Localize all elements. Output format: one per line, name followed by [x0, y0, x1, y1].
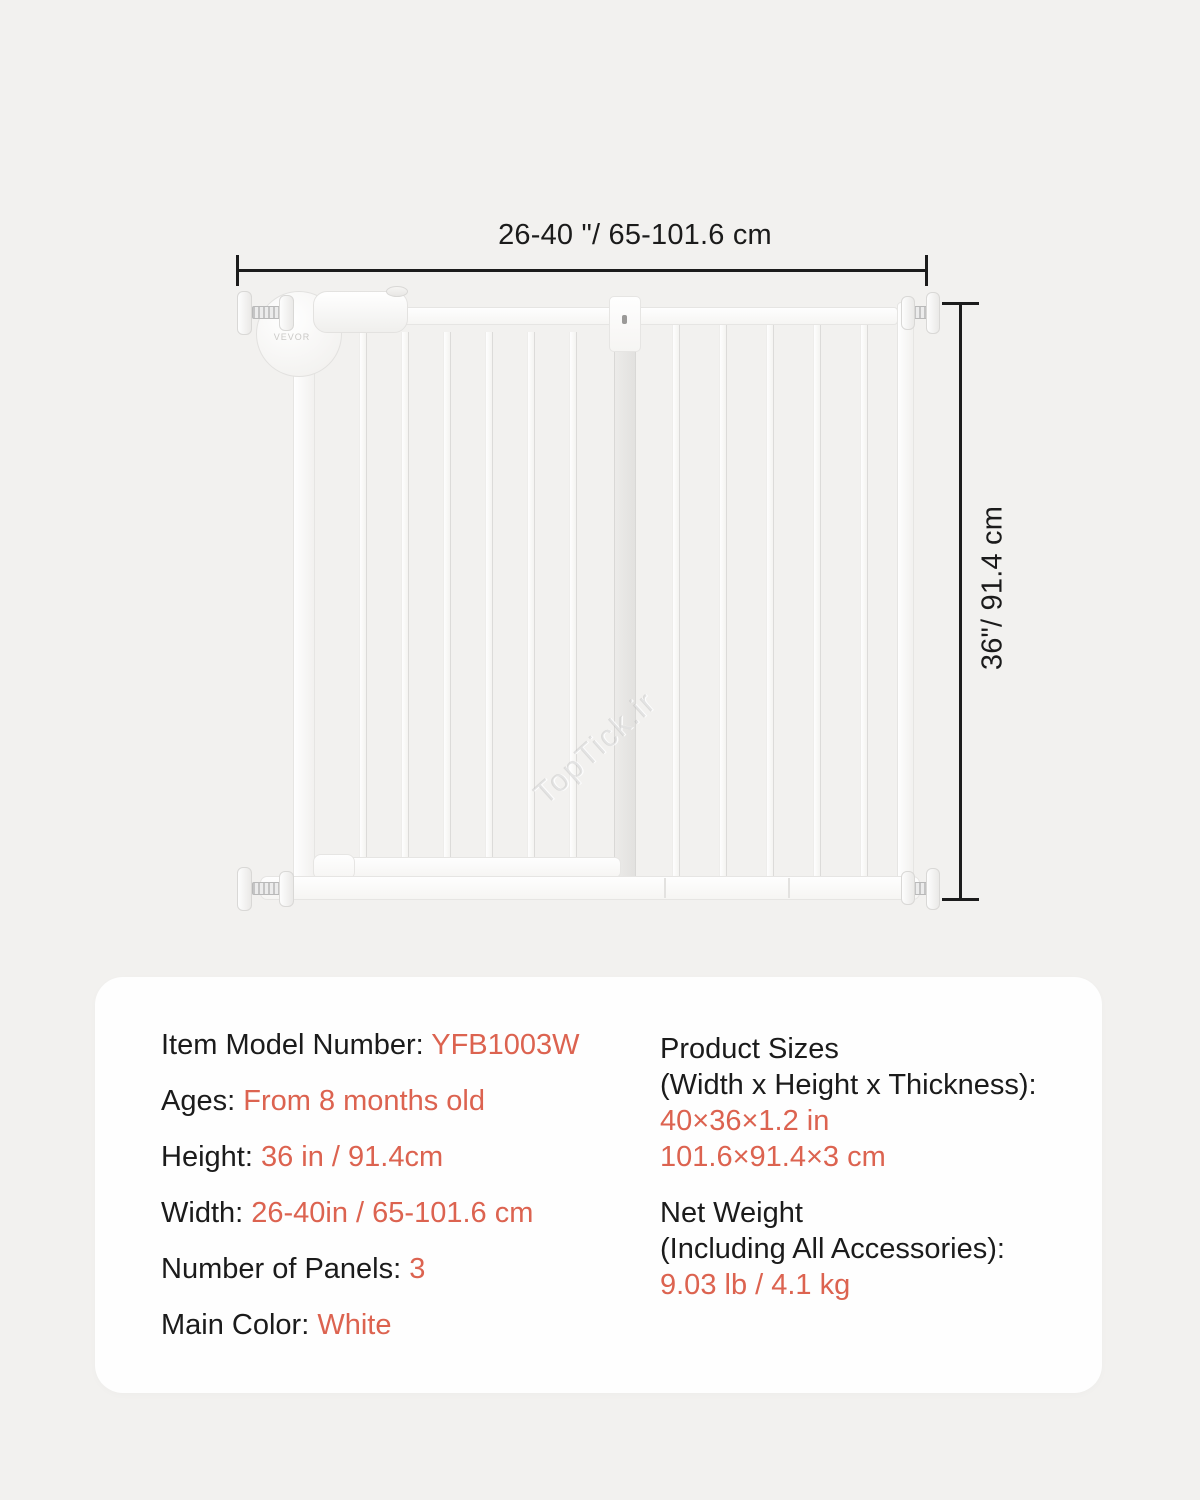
spec-row-ages: Ages: From 8 months old: [161, 1085, 485, 1118]
watermark: TopTick.ir: [527, 684, 664, 812]
pressure-knob-flange: [901, 871, 915, 905]
width-dimension-label: 26-40 "/ 65-101.6 cm: [290, 219, 980, 252]
spec-group-value: 101.6×91.4×3 cm: [660, 1139, 1037, 1175]
spec-group-title: Net Weight: [660, 1195, 1005, 1231]
gate-bar: [766, 318, 774, 878]
spec-row-color: Main Color: White: [161, 1309, 391, 1342]
pressure-knob-cap: [926, 292, 940, 334]
pressure-knob-cap: [237, 291, 252, 335]
gate-left-post: [293, 300, 315, 888]
pressure-screw: [252, 882, 281, 895]
gate-bar: [672, 318, 680, 878]
pressure-knob-flange: [279, 871, 294, 907]
height-dimension-tick-bottom: [942, 898, 979, 901]
gate-latch-handle: [313, 291, 408, 333]
spec-value: 26-40in / 65-101.6 cm: [251, 1197, 533, 1229]
pressure-knob-flange: [901, 296, 915, 330]
gate-bar: [719, 318, 727, 878]
gate-joint-post: [614, 300, 636, 882]
pressure-screw: [252, 306, 281, 319]
gate-joint-screw: [622, 315, 627, 324]
spec-group-subtitle: (Width x Height x Thickness):: [660, 1067, 1037, 1103]
height-dimension-tick-top: [942, 302, 979, 305]
gate-bar: [813, 318, 821, 878]
spec-group-value: 9.03 lb / 4.1 kg: [660, 1267, 1005, 1303]
gate-top-rail: [398, 307, 898, 325]
gate-bar: [485, 332, 493, 860]
spec-row-panels: Number of Panels: 3: [161, 1253, 425, 1286]
gate-door-bottom-rail: [313, 857, 621, 878]
gate-bar: [860, 318, 868, 878]
pressure-knob-flange: [279, 295, 294, 331]
spec-label: Height:: [161, 1141, 253, 1173]
spec-row-height: Height: 36 in / 91.4cm: [161, 1141, 443, 1174]
height-dimension-label: 36"/ 91.4 cm: [977, 506, 1010, 670]
brand-logo: VEVOR: [274, 332, 311, 342]
spec-group-net-weight: Net Weight (Including All Accessories): …: [660, 1195, 1005, 1303]
spec-group-title: Product Sizes: [660, 1031, 1037, 1067]
spec-value: 36 in / 91.4cm: [261, 1141, 443, 1173]
spec-group-subtitle: (Including All Accessories):: [660, 1231, 1005, 1267]
spec-row-width: Width: 26-40in / 65-101.6 cm: [161, 1197, 533, 1230]
spec-value: YFB1003W: [431, 1029, 579, 1061]
pressure-knob-cap: [237, 867, 252, 911]
gate-right-post: [897, 302, 914, 888]
gate-latch-button: [386, 286, 408, 297]
pressure-knob-cap: [926, 868, 940, 910]
spec-group-product-sizes: Product Sizes (Width x Height x Thicknes…: [660, 1031, 1037, 1175]
spec-value: 3: [409, 1253, 425, 1285]
spec-value: White: [317, 1309, 391, 1341]
spec-label: Width:: [161, 1197, 243, 1229]
spec-group-value: 40×36×1.2 in: [660, 1103, 1037, 1139]
gate-bar: [401, 332, 409, 860]
width-dimension-tick-left: [236, 255, 239, 286]
spec-label: Number of Panels:: [161, 1253, 401, 1285]
spec-value: From 8 months old: [243, 1085, 485, 1117]
height-dimension-line: [959, 302, 962, 901]
spec-row-model: Item Model Number: YFB1003W: [161, 1029, 580, 1062]
spec-label: Item Model Number:: [161, 1029, 424, 1061]
width-dimension-tick-right: [925, 255, 928, 286]
gate-bottom-rail-seam: [664, 878, 666, 898]
gate-bottom-rail: [260, 876, 920, 900]
width-dimension-line: [237, 269, 928, 272]
gate-bar: [359, 332, 367, 860]
spec-label: Ages:: [161, 1085, 235, 1117]
gate-joint-bracket: [609, 296, 641, 352]
gate-bottom-rail-seam: [788, 878, 790, 898]
spec-label: Main Color:: [161, 1309, 309, 1341]
gate-bar: [443, 332, 451, 860]
